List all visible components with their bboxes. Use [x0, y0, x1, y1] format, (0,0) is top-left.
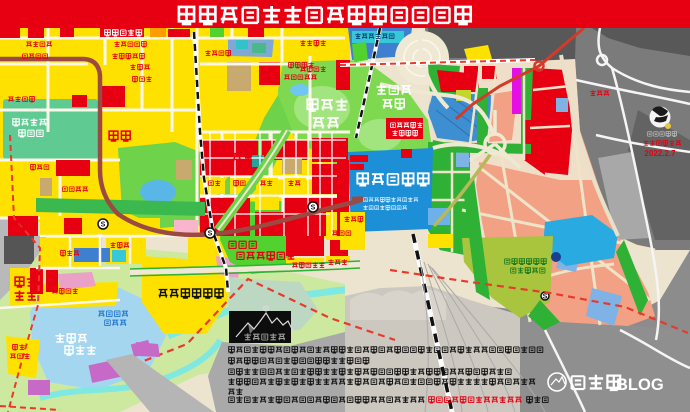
svg-text:S: S: [543, 294, 548, 301]
svg-text:S: S: [101, 222, 106, 229]
svg-text:BLOG: BLOG: [616, 376, 664, 394]
svg-text:S: S: [208, 231, 213, 238]
svg-text:2022.2.7: 2022.2.7: [644, 149, 676, 158]
svg-text:S: S: [311, 205, 316, 212]
